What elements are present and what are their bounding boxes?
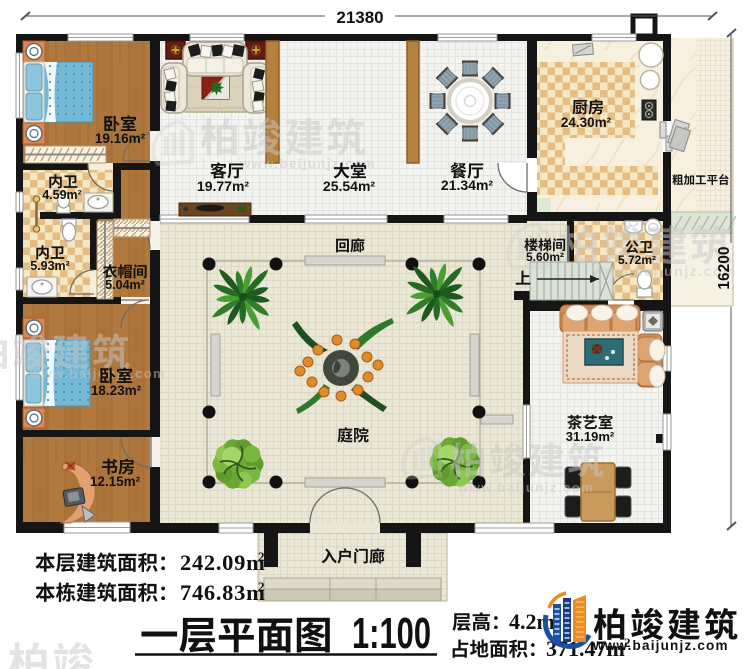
svg-text:www.baijunjz.com: www.baijunjz.com [457, 480, 594, 495]
svg-text:www.beijunjz.com: www.beijunjz.com [591, 263, 737, 279]
svg-text:31.19m²: 31.19m² [566, 429, 615, 444]
svg-text:21.34m²: 21.34m² [441, 177, 493, 193]
svg-text:www.baijunjz.com: www.baijunjz.com [29, 366, 166, 381]
svg-text:242.09m: 242.09m [180, 550, 266, 575]
svg-text:www.baijunjz.com: www.baijunjz.com [592, 638, 729, 653]
svg-text:2: 2 [258, 579, 265, 594]
svg-text:19.77m²: 19.77m² [197, 178, 249, 194]
svg-text:5.60m²: 5.60m² [526, 250, 564, 264]
svg-text:5.04m²: 5.04m² [105, 278, 145, 292]
svg-text:12.15m²: 12.15m² [90, 474, 141, 489]
svg-text:5.72m²: 5.72m² [618, 253, 656, 267]
svg-text:4.59m²: 4.59m² [42, 188, 82, 202]
svg-text:21380: 21380 [336, 8, 383, 27]
svg-text:18.23m²: 18.23m² [91, 383, 142, 398]
svg-text:1:100: 1:100 [352, 609, 431, 658]
svg-text:25.54m²: 25.54m² [323, 178, 375, 194]
svg-text:5.93m²: 5.93m² [30, 259, 70, 273]
svg-text:19.16m²: 19.16m² [95, 131, 146, 146]
svg-text:16200: 16200 [716, 246, 733, 289]
svg-text:24.30m²: 24.30m² [561, 115, 612, 130]
svg-text:746.83m: 746.83m [180, 580, 266, 605]
svg-text:2: 2 [258, 549, 265, 564]
